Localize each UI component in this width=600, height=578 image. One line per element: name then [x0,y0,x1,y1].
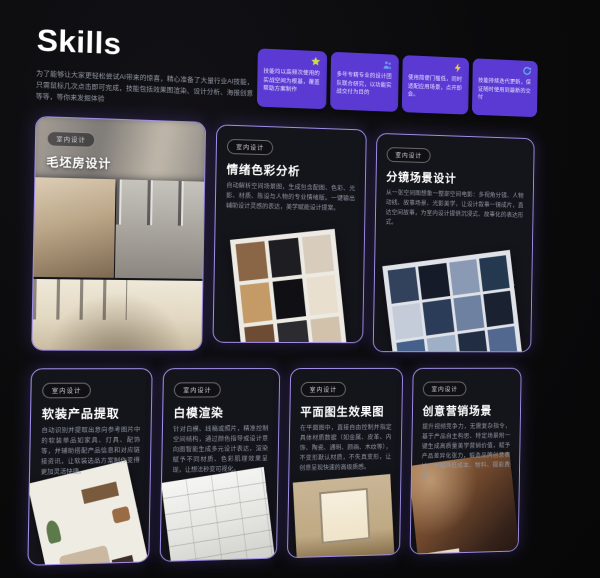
card-overlay: 室内设计 毛坯房设计 [36,117,206,175]
rendered-bedroom-image [288,477,401,558]
category-tag: 室内设计 [423,382,467,397]
page: Skills 为了能够让大家更轻松尝试AI带来的惊喜，精心准备了大量行业AI技能… [0,0,600,578]
category-tag: 室内设计 [387,147,431,163]
card-description: 自动识别并提取出意向参考图片中的软装单品如家具、灯具、配饰等，并辅助搭配产品信息… [41,427,141,479]
card-title: 情绪色彩分析 [226,161,355,181]
card-title: 平面图生效果图 [300,404,392,421]
feature-badge-text: 技能持续迭代更新，保证随时使用到最新的交付 [478,77,532,104]
team-icon [382,59,393,70]
category-tag-label: 室内设计 [310,388,338,394]
feature-badge-text: 使用简便门槛低，同时适配应用场景，点开即会。 [408,74,463,101]
skill-card-plan-to-render[interactable]: 室内设计 平面图生效果图 在平面图中，直接自由控制并指定具体材质数据（如金属、皮… [287,368,403,558]
white-clay-model-photo [161,467,277,562]
category-tag-label: 室内设计 [395,153,422,160]
skill-card-white-model-render[interactable]: 室内设计 白模渲染 针对白模、线稿或照片，精准控制空间结构，通过颜色指导或设计意… [160,368,281,562]
card-description: 提升视频竞争力，无需复杂指令，基于产品自主构思、特定场景附一键生成高质量美学营销… [421,423,510,482]
mood-board-collage [230,229,348,343]
skill-card-bare-room[interactable]: 室内设计 毛坯房设计 [31,116,206,351]
feature-badge-practical: 技能均以高频次使用的实战空间为根基，覆盖帮助方案制作 [257,48,327,109]
feature-badge-team: 多年专精专业的设计团队联合研究，以功能实战交付为目的 [330,52,399,112]
page-title: Skills [36,24,256,69]
card-description: 针对白模、线稿或照片，精准控制空间结构，通过颜色指导或设计意向图智能生成多元设计… [172,425,268,476]
feature-badge-updates: 技能持续迭代更新，保证随时使用到最新的交付 [472,58,538,117]
card-title: 软装产品提取 [42,405,141,422]
category-tag: 室内设计 [42,383,91,399]
white-model-render-image [160,473,277,562]
skills-section: Skills 为了能够让大家更轻松尝试AI带来的惊喜，精心准备了大量行业AI技能… [27,9,538,566]
category-tag: 室内设计 [227,139,273,156]
skill-card-soft-furnishing-extract[interactable]: 室内设计 软装产品提取 自动识别并提取出意向参考图片中的软装单品如家具、灯具、配… [27,368,152,566]
skill-cards-row-1: 室内设计 毛坯房设计 室内设计 情绪色彩分析 自动解析空间场景图，生成包含配图、… [31,116,536,352]
refresh-icon [522,65,532,76]
section-description: 为了能够让大家更轻松尝试AI带来的惊喜，精心准备了大量行业AI技能，只需鼠标几次… [36,68,254,110]
bedroom-window-photo [293,474,395,558]
card-title: 白模渲染 [173,404,268,421]
category-tag-label: 室内设计 [183,388,212,394]
section-header: Skills 为了能够让大家更轻松尝试AI带来的惊喜，精心准备了大量行业AI技能… [36,9,539,121]
soft-furnishing-board-image [28,469,150,566]
category-tag: 室内设计 [47,131,96,148]
skill-cards-row-2: 室内设计 软装产品提取 自动识别并提取出意向参考图片中的软装单品如家具、灯具、配… [27,368,532,566]
card-title: 创意营销场景 [422,403,511,419]
category-tag: 室内设计 [174,382,221,397]
category-tag: 室内设计 [301,382,346,397]
storyboard-frames-collage [382,250,523,353]
header-text-block: Skills 为了能够让大家更轻松尝试AI带来的惊喜，精心准备了大量行业AI技能… [36,9,257,111]
category-tag-label: 室内设计 [52,389,82,395]
feature-badge-text: 多年专精专业的设计团队联合研究，以功能实战交付为目的 [336,71,393,99]
photo-concrete-bare-room [115,179,204,279]
star-icon [310,56,321,67]
skill-card-emotion-color-analysis[interactable]: 室内设计 情绪色彩分析 自动解析空间场景图，生成包含配图、色彩、光影、材质、陈设… [212,124,366,343]
category-tag-label: 室内设计 [56,137,86,144]
mood-color-board-image [213,233,364,344]
category-tag-label: 室内设计 [236,145,264,152]
card-description: 从一张空间图想象一整部空间电影：多视角分镜、人物动线、故事场景、光影美学，让设计… [385,190,523,232]
skill-card-creative-marketing[interactable]: 室内设计 创意营销场景 提升视频竞争力，无需复杂指令，基于产品自主构思、特定场景… [410,368,522,555]
card-title: 分镜场景设计 [386,169,524,188]
card-description: 自动解析空间场景图，生成包含配图、色彩、光影、材质、陈设与人物的专业情绪版。一键… [226,182,355,215]
photo-classic-living-room [32,279,202,350]
feature-badges: 技能均以高频次使用的实战空间为根基，覆盖帮助方案制作 多年专精专业的设计团队联合… [257,48,538,117]
feature-badge-text: 技能均以高频次使用的实战空间为根基，覆盖帮助方案制作 [263,68,321,96]
photo-beige-living-room [34,177,116,278]
skill-card-storyboard-scene[interactable]: 室内设计 分镜场景设计 从一张空间图想象一整部空间电影：多视角分镜、人物动线、故… [373,133,535,352]
storyboard-collage-image [373,256,532,352]
feature-badge-easy: 使用简便门槛低，同时适配应用场景，点开即会。 [402,55,469,115]
lightning-icon [453,62,464,73]
category-tag-label: 室内设计 [431,387,458,393]
card-description: 在平面图中，直接自由控制并指定具体材质数据（如金属、皮革、内饰、陶瓷、通明、颜画… [299,424,391,474]
